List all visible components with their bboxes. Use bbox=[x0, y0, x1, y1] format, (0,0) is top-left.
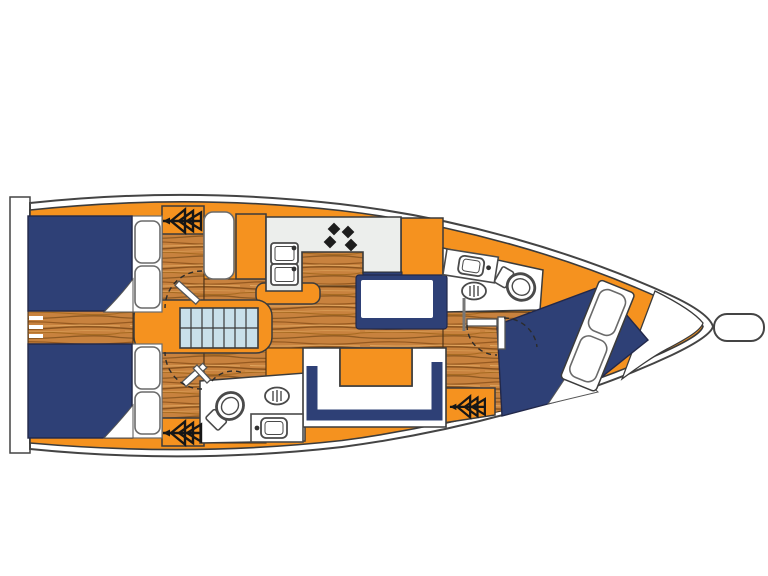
double-sink-icon bbox=[271, 243, 298, 285]
transom-platform bbox=[10, 197, 30, 453]
saloon-table bbox=[340, 348, 412, 386]
pillow bbox=[135, 221, 160, 263]
chart-table bbox=[356, 275, 447, 329]
port-bench bbox=[204, 212, 234, 279]
yacht-floor-plan-page bbox=[0, 0, 768, 576]
pillow bbox=[135, 347, 160, 389]
galley-floor bbox=[302, 252, 363, 286]
vent-grate-icon bbox=[265, 388, 289, 405]
bow-sprit bbox=[714, 314, 764, 341]
pillow bbox=[135, 392, 160, 434]
galley-cabinet-aft bbox=[236, 214, 266, 279]
door-leaf bbox=[467, 319, 497, 326]
galley-cabinet-fwd bbox=[401, 218, 443, 278]
walkway-steps bbox=[29, 316, 43, 338]
pillow bbox=[135, 266, 160, 308]
vent-grate-icon bbox=[462, 283, 486, 300]
companionway-stairs bbox=[180, 308, 258, 348]
door-leaf bbox=[498, 317, 505, 349]
aft-port-cabin-berth bbox=[28, 216, 132, 311]
saloon-dinette bbox=[303, 348, 446, 427]
yacht-floor-plan bbox=[0, 0, 768, 576]
aft-walkway-floor bbox=[28, 311, 133, 344]
washbasin-icon bbox=[251, 414, 303, 442]
chart-table-top bbox=[361, 280, 433, 318]
